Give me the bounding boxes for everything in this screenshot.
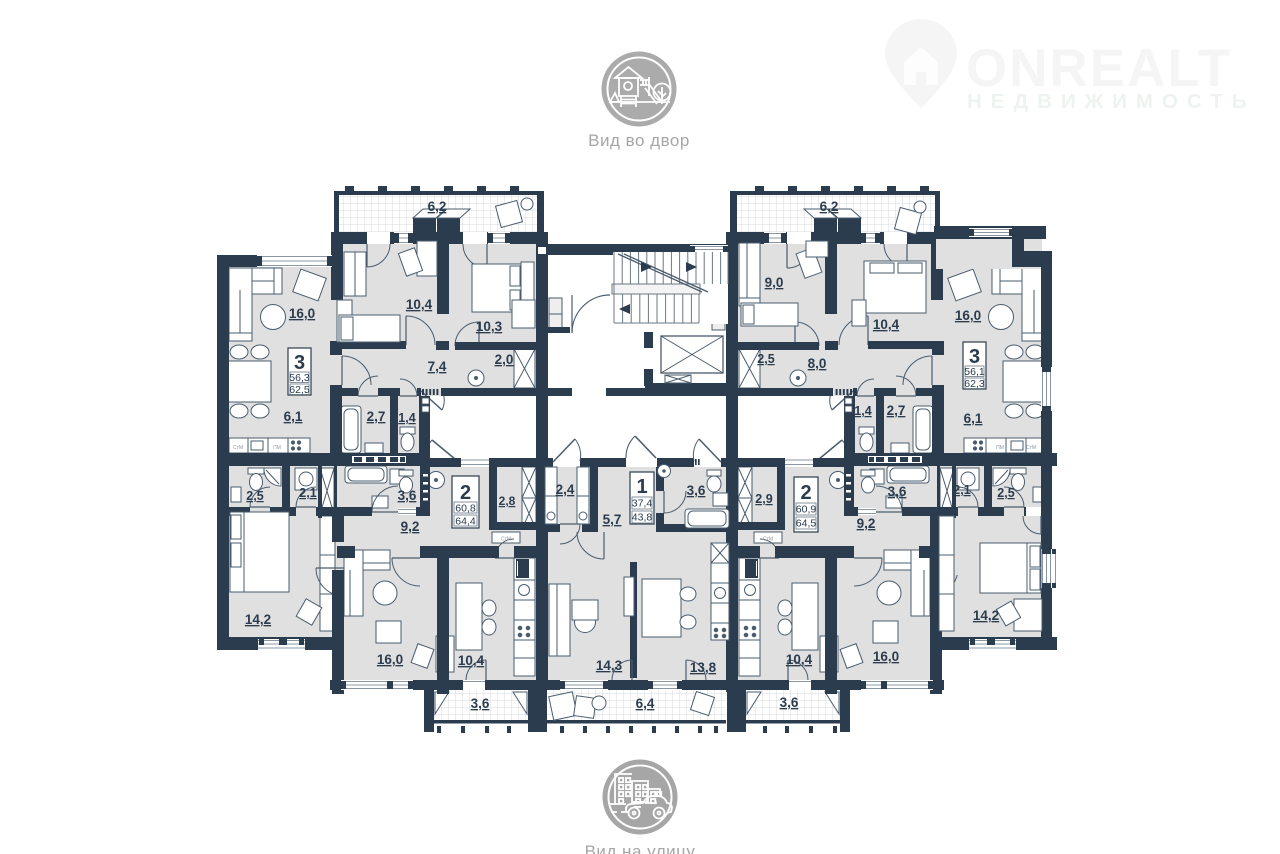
svg-text:2,7: 2,7: [887, 403, 906, 418]
svg-text:2,1: 2,1: [299, 486, 316, 500]
svg-text:1,4: 1,4: [854, 404, 871, 418]
svg-text:2,4: 2,4: [556, 482, 575, 497]
svg-text:3,6: 3,6: [888, 484, 907, 499]
svg-text:16,0: 16,0: [873, 649, 899, 664]
svg-text:ПМ: ПМ: [273, 445, 281, 451]
svg-text:3,6: 3,6: [687, 483, 706, 498]
svg-text:56,3: 56,3: [289, 372, 310, 384]
svg-text:64,5: 64,5: [796, 518, 817, 530]
svg-text:16,0: 16,0: [955, 308, 981, 323]
svg-text:16,0: 16,0: [377, 652, 403, 667]
svg-text:↓: ↓: [492, 518, 498, 530]
svg-text:Вид во двор: Вид во двор: [588, 131, 690, 150]
svg-text:2,5: 2,5: [997, 486, 1014, 500]
svg-text:ПМ: ПМ: [996, 445, 1004, 451]
svg-text:64,4: 64,4: [455, 516, 476, 528]
svg-text:СтМ: СтМ: [501, 537, 511, 543]
svg-text:2: 2: [800, 482, 811, 504]
svg-text:7,4: 7,4: [428, 359, 447, 374]
svg-text:3: 3: [294, 352, 305, 374]
svg-text:9,0: 9,0: [765, 275, 784, 290]
svg-text:14,2: 14,2: [245, 612, 271, 627]
svg-text:56,1: 56,1: [964, 366, 985, 378]
svg-text:10,3: 10,3: [476, 319, 503, 334]
svg-text:СтМ: СтМ: [763, 537, 773, 543]
svg-text:9,2: 9,2: [857, 516, 876, 531]
svg-text:2,0: 2,0: [495, 352, 514, 367]
svg-text:↓: ↓: [776, 513, 782, 525]
svg-text:6,1: 6,1: [284, 409, 303, 424]
svg-text:60,8: 60,8: [455, 503, 476, 515]
svg-text:5,7: 5,7: [603, 512, 622, 527]
svg-text:2,8: 2,8: [499, 494, 516, 508]
svg-text:1: 1: [636, 476, 647, 498]
svg-text:37,4: 37,4: [632, 498, 653, 510]
svg-text:↑: ↑: [492, 475, 498, 487]
svg-text:2,7: 2,7: [367, 409, 386, 424]
svg-text:16,0: 16,0: [289, 306, 315, 321]
svg-text:62,3: 62,3: [964, 378, 985, 390]
svg-text:3: 3: [969, 346, 980, 368]
svg-text:НЕДВИЖИМОСТЬ: НЕДВИЖИМОСТЬ: [967, 90, 1255, 113]
svg-text:43,8: 43,8: [632, 512, 653, 524]
svg-text:3,6: 3,6: [398, 488, 417, 503]
svg-text:↑: ↑: [776, 481, 782, 493]
svg-text:6,4: 6,4: [636, 696, 655, 711]
svg-text:1,4: 1,4: [398, 411, 415, 425]
svg-text:2,9: 2,9: [755, 492, 772, 506]
svg-text:2: 2: [460, 482, 471, 504]
svg-text:8,0: 8,0: [808, 356, 827, 371]
svg-text:9,2: 9,2: [401, 519, 420, 534]
svg-text:3,6: 3,6: [780, 695, 799, 710]
svg-text:3,6: 3,6: [471, 696, 490, 711]
svg-text:6,2: 6,2: [428, 199, 447, 214]
svg-text:10,4: 10,4: [873, 317, 900, 332]
svg-text:СтМ: СтМ: [1026, 445, 1036, 451]
svg-text:10,4: 10,4: [458, 653, 485, 668]
svg-text:10,4: 10,4: [786, 652, 813, 667]
svg-text:Вид на улицу: Вид на улицу: [585, 842, 696, 854]
svg-text:10,4: 10,4: [406, 297, 433, 312]
svg-text:2,5: 2,5: [757, 352, 774, 366]
svg-text:СтМ: СтМ: [233, 445, 243, 451]
svg-text:6,1: 6,1: [964, 411, 983, 426]
svg-text:60,9: 60,9: [796, 504, 817, 516]
svg-text:2,1: 2,1: [953, 483, 970, 497]
svg-text:2,5: 2,5: [246, 489, 263, 503]
svg-text:14,3: 14,3: [596, 658, 623, 673]
svg-text:14,2: 14,2: [973, 608, 999, 623]
svg-text:13,8: 13,8: [690, 660, 717, 675]
svg-text:6,2: 6,2: [820, 199, 839, 214]
svg-text:62,5: 62,5: [289, 384, 310, 396]
